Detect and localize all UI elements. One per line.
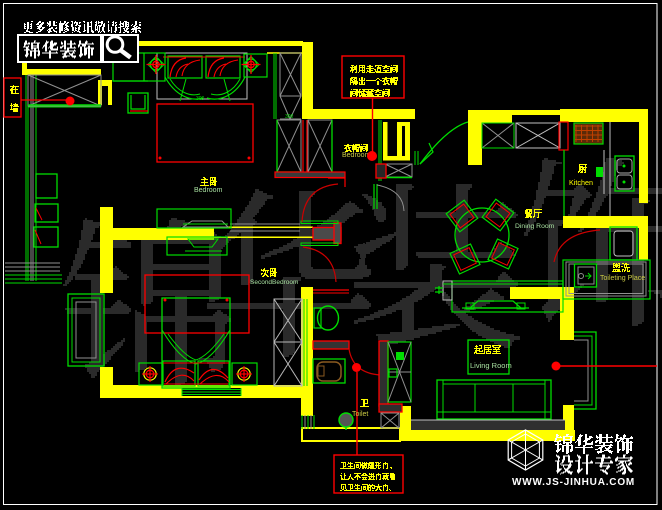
svg-text:Bedroom: Bedroom xyxy=(342,152,371,159)
svg-text:Bedroom: Bedroom xyxy=(194,187,223,194)
svg-text:Toilet: Toilet xyxy=(352,411,368,418)
svg-text:300: 300 xyxy=(196,96,205,102)
svg-text:Toileting Place: Toileting Place xyxy=(600,275,645,282)
svg-text:WWW.JS-JINHUA.COM: WWW.JS-JINHUA.COM xyxy=(512,477,635,488)
svg-text:SecondBedroom: SecondBedroom xyxy=(250,279,298,286)
svg-text:Living Room: Living Room xyxy=(470,361,512,370)
svg-text:Kitchen: Kitchen xyxy=(569,178,593,187)
svg-text:300: 300 xyxy=(285,114,294,120)
svg-text:Dining Room: Dining Room xyxy=(515,223,555,230)
